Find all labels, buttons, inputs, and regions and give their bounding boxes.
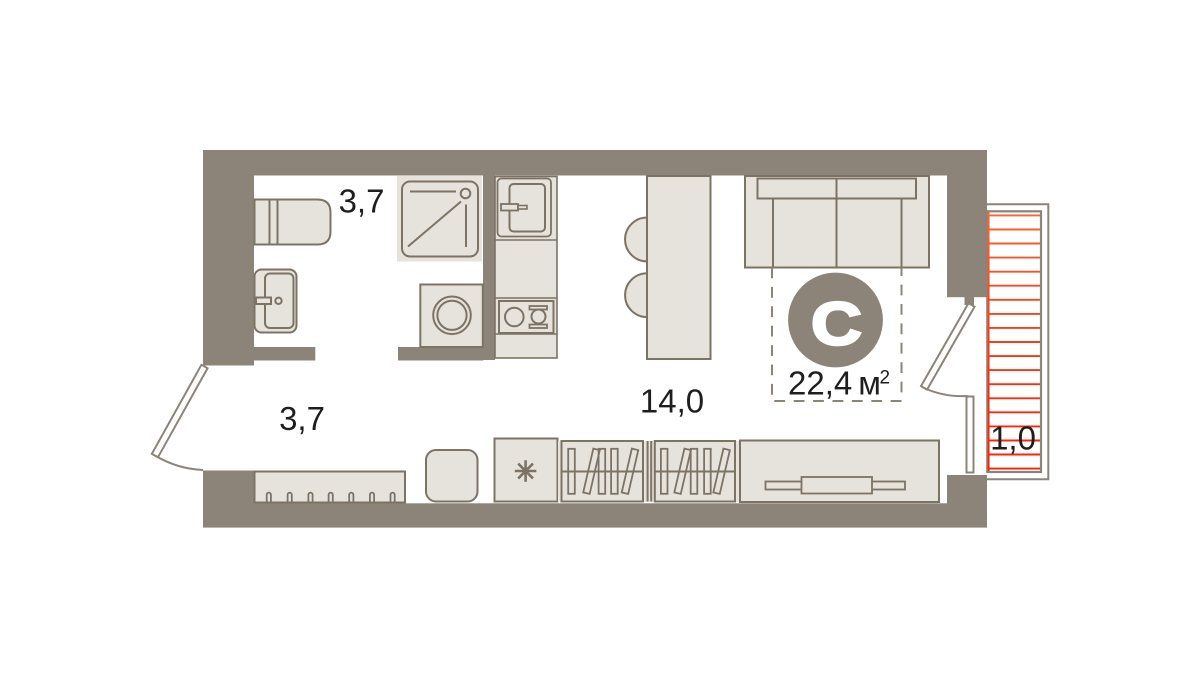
svg-text:3,7: 3,7 xyxy=(339,183,385,220)
svg-text:22,4 м2: 22,4 м2 xyxy=(788,364,890,401)
svg-text:С: С xyxy=(811,290,862,357)
svg-text:14,0: 14,0 xyxy=(640,382,704,419)
svg-text:1,0: 1,0 xyxy=(990,420,1036,457)
svg-text:3,7: 3,7 xyxy=(279,400,325,437)
